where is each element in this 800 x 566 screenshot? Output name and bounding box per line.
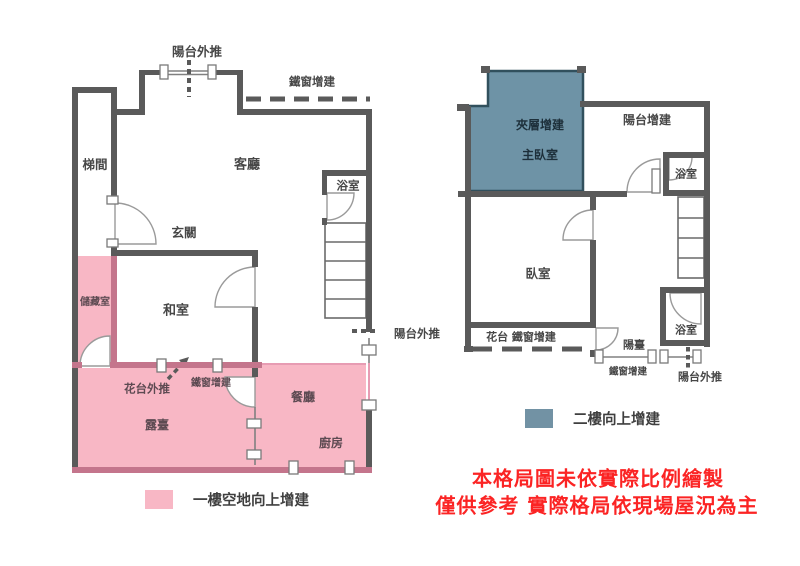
label-storage: 儲藏室 [80, 298, 110, 308]
label-balcony-addition: 陽台增建 [623, 114, 671, 126]
label-mezzanine-addition: 夾層增建 [516, 119, 564, 131]
label-master-bedroom: 主臥室 [522, 149, 558, 161]
label-flower-stand-pushout: 花台外推 [124, 383, 170, 395]
label-entryway: 玄關 [171, 227, 196, 240]
label-iron-window-lower: 鐵窗增建 [609, 367, 647, 377]
label-iron-window-top: 鐵窗增建 [289, 76, 335, 88]
label-balcony-pushout-right: 陽台外推 [394, 328, 440, 340]
label-balcony-pushout-2f: 陽台外推 [678, 372, 722, 383]
door-tatami [215, 267, 255, 307]
legend-label-pink: 一樓空地向上增建 [193, 489, 309, 510]
legend-swatch-pink [145, 490, 173, 509]
door-bedroom-2f [563, 210, 593, 240]
door-stairwell [115, 203, 156, 244]
floor-plan-page: 陽台外推 鐵窗增建 梯間 客廳 玄關 浴室 儲藏室 和室 陽台外推 花台外推 鐵… [0, 0, 800, 566]
label-dining-room: 餐廳 [291, 391, 315, 403]
legend-label-blue: 二樓向上增建 [573, 408, 660, 429]
legend-swatch-blue [525, 409, 553, 428]
label-bathroom-2f-lower: 浴室 [675, 325, 697, 336]
label-flower-iron-window: 花台 鐵窗增建 [486, 332, 556, 343]
label-balcony-2f: 陽臺 [623, 340, 645, 351]
label-bathroom-2f-upper: 浴室 [675, 169, 697, 180]
label-iron-window-mid: 鐵窗增建 [191, 379, 231, 389]
stairs-1f [325, 223, 366, 318]
door-bathroom-2f-lower [670, 293, 701, 324]
legend-first-floor: 一樓空地向上增建 [145, 489, 309, 510]
label-living-room: 客廳 [234, 159, 260, 172]
label-tatami-room: 和室 [163, 305, 189, 318]
disclaimer-line-1: 本格局圖未依實際比例繪製 [472, 463, 724, 492]
disclaimer-line-2: 僅供參考 實際格局依現場屋況為主 [436, 490, 759, 519]
label-stairwell: 梯間 [82, 159, 107, 172]
label-terrace: 露臺 [145, 419, 169, 431]
door-bathroom-1f [327, 193, 354, 220]
door-balcony-2f [596, 328, 618, 350]
label-bedroom: 臥室 [525, 268, 550, 281]
label-bathroom-1f: 浴室 [337, 180, 360, 192]
label-kitchen: 廚房 [319, 437, 343, 449]
label-balcony-pushout-top: 陽台外推 [172, 46, 222, 59]
stairs-2f [678, 197, 704, 278]
legend-second-floor: 二樓向上增建 [525, 408, 660, 429]
